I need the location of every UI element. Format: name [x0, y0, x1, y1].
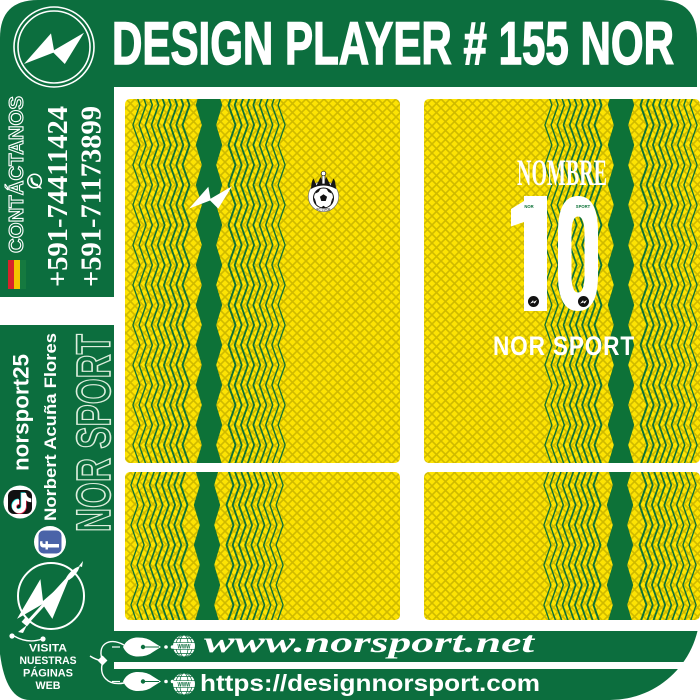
svg-text:CONTÁCTANOS: CONTÁCTANOS	[5, 96, 28, 253]
svg-text:NUESTRAS: NUESTRAS	[20, 655, 77, 667]
svg-text:WWW: WWW	[178, 682, 191, 688]
svg-text:+591-74411424: +591-74411424	[42, 106, 74, 287]
svg-text:Norbert Acuña Flores: Norbert Acuña Flores	[41, 333, 60, 521]
svg-text:WWW: WWW	[178, 644, 191, 650]
svg-text:DESIGN PLAYER # 155 NOR: DESIGN PLAYER # 155 NOR	[112, 10, 674, 77]
svg-text:f: f	[35, 541, 65, 550]
svg-text:SPORT: SPORT	[576, 204, 591, 209]
svg-text:NOMBRE: NOMBRE	[517, 153, 607, 194]
svg-text:PÁGINAS: PÁGINAS	[23, 667, 73, 680]
svg-text:NOR: NOR	[524, 204, 533, 209]
svg-text:NOR SPORT: NOR SPORT	[493, 331, 635, 361]
svg-text:WEB: WEB	[36, 680, 61, 692]
svg-text:NOR SPORT: NOR SPORT	[68, 334, 121, 532]
svg-text:https://designnorsport.com: https://designnorsport.com	[200, 670, 540, 696]
svg-text:FC LUCK: FC LUCK	[317, 208, 332, 212]
svg-text:norsport25: norsport25	[9, 354, 34, 471]
svg-text:VISITA: VISITA	[29, 643, 67, 655]
svg-text:www.norsport.net: www.norsport.net	[204, 626, 537, 659]
svg-text:+591-71173899: +591-71173899	[76, 106, 108, 287]
